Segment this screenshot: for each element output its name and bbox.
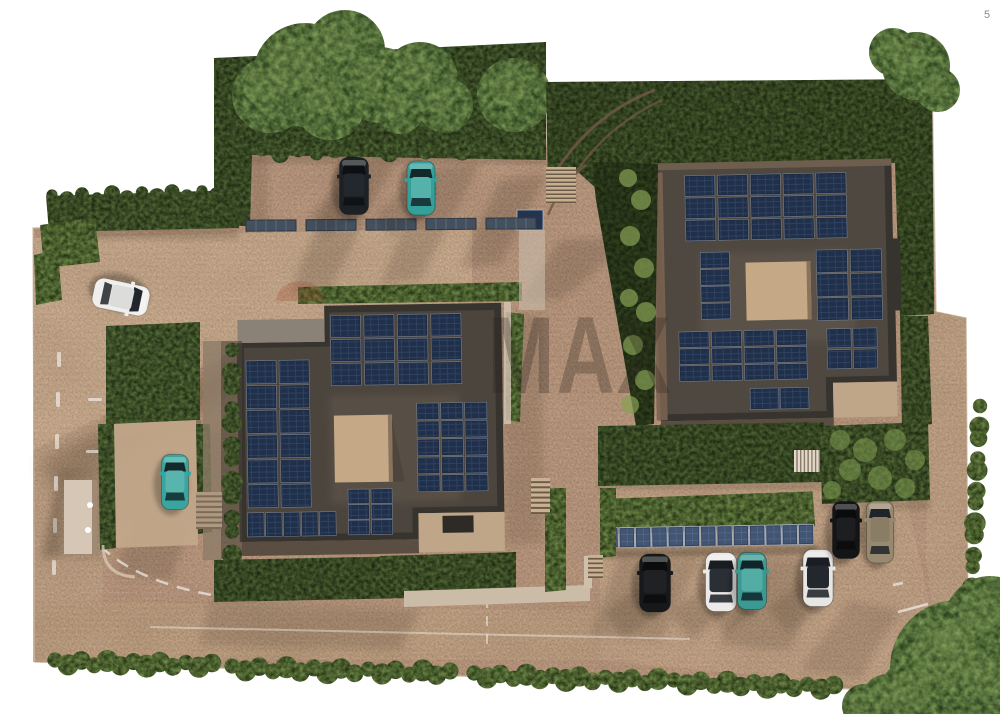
svg-text:5: 5 bbox=[984, 9, 990, 21]
svg-text:MAX: MAX bbox=[487, 295, 672, 417]
